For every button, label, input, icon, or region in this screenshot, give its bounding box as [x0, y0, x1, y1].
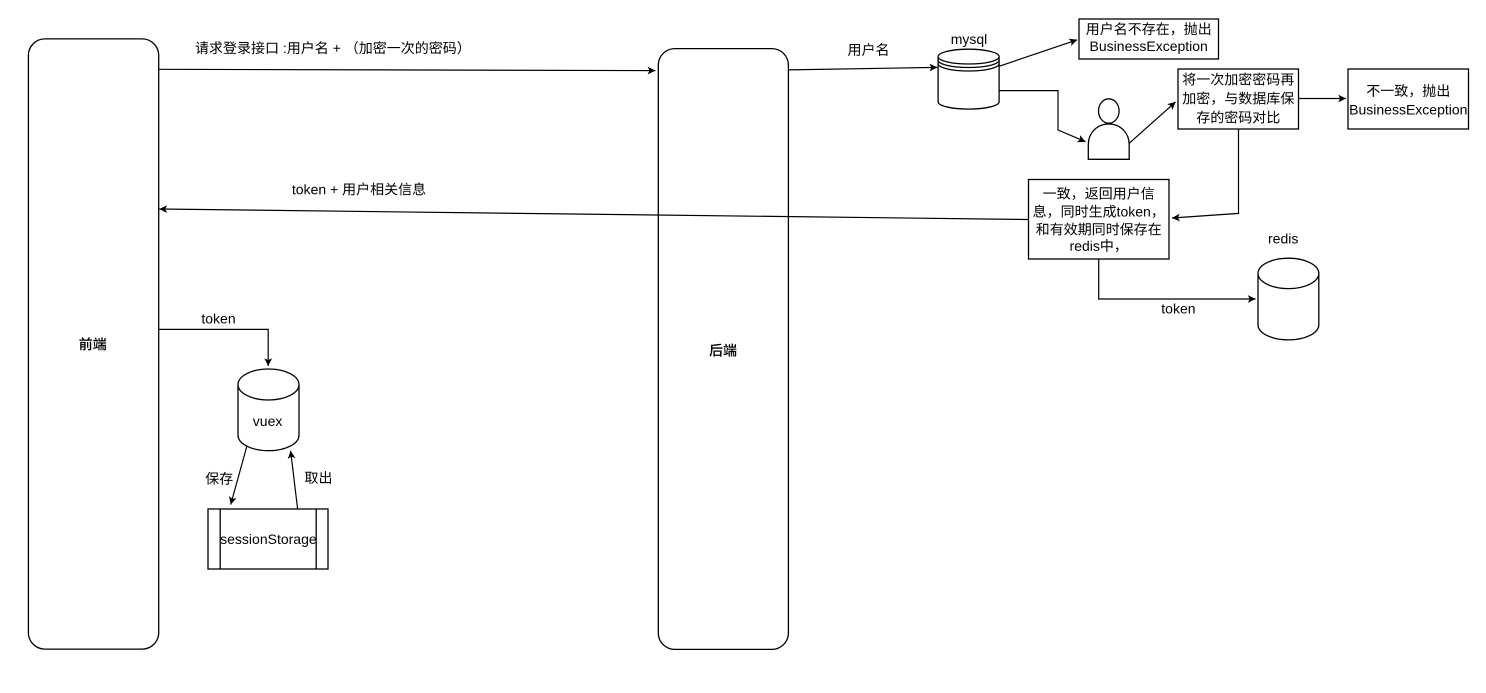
svg-text:BusinessException: BusinessException: [1090, 38, 1208, 54]
svg-text:vuex: vuex: [253, 413, 283, 429]
svg-text:mysql: mysql: [951, 31, 988, 47]
svg-text:token: token: [201, 310, 235, 326]
svg-text:token: token: [1161, 301, 1195, 317]
svg-text:sessionStorage: sessionStorage: [220, 531, 317, 547]
svg-text:redis: redis: [1268, 231, 1298, 247]
svg-text:BusinessException: BusinessException: [1349, 102, 1467, 118]
